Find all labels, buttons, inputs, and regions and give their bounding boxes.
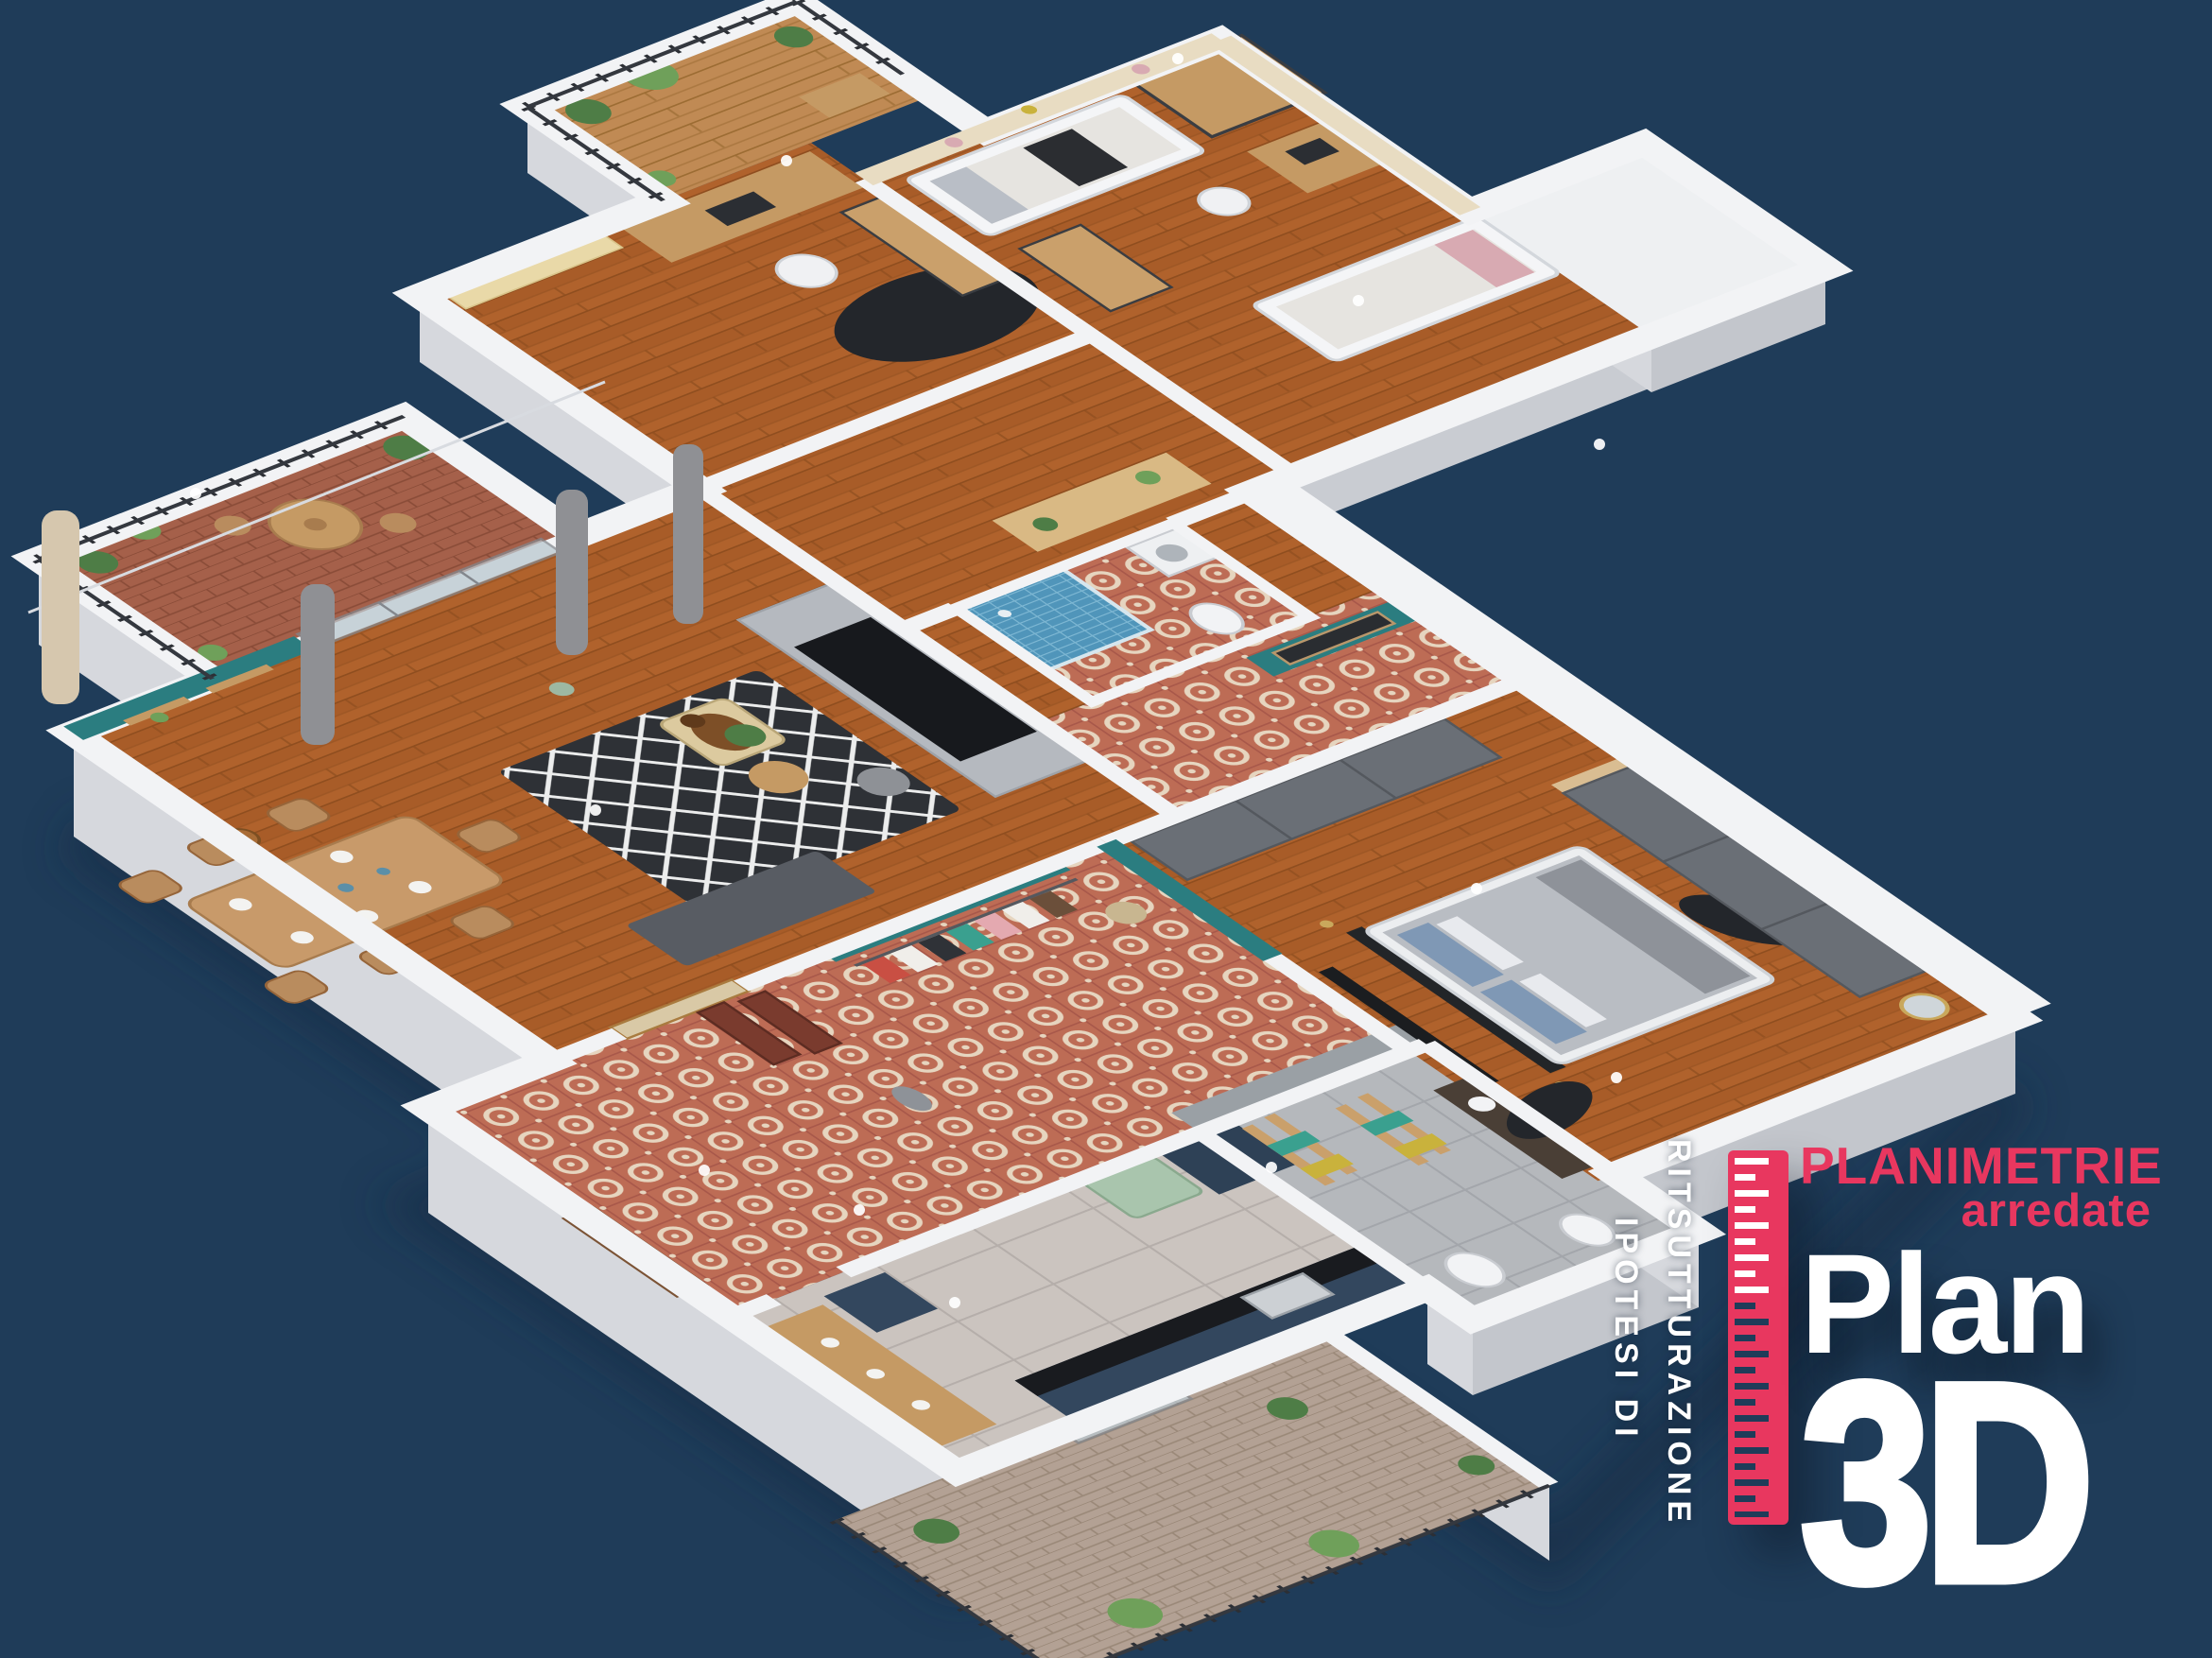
- vertical-caption-line1: IPOTESI DI: [1607, 1218, 1644, 1442]
- curtain: [556, 490, 588, 655]
- poster: IPOTESI DI RITSUTTURAZIONE PLANIMETRIE a…: [0, 0, 2212, 1658]
- brand-logo: PLANIMETRIE arredate Plan 3D: [1800, 1140, 2152, 1593]
- curtain: [673, 444, 703, 624]
- logo-word-planimetrie: PLANIMETRIE: [1800, 1140, 2152, 1192]
- curtain: [301, 584, 335, 745]
- ruler-icon: [1728, 1150, 1789, 1525]
- vertical-caption-line2: RITSUTTURAZIONE: [1660, 1139, 1697, 1528]
- logo-word-3d: 3D: [1800, 1372, 2095, 1593]
- curtain: [42, 510, 79, 704]
